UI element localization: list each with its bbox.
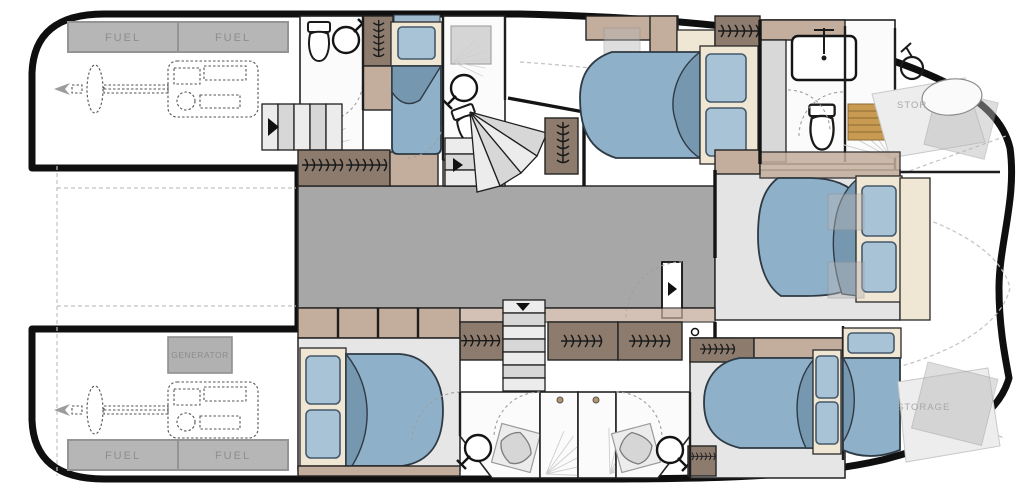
deck-hatch xyxy=(828,262,864,298)
shower-stall xyxy=(578,392,616,478)
hull-window xyxy=(394,15,440,22)
deck-hatch xyxy=(828,194,864,230)
pillow xyxy=(706,108,746,156)
pillow xyxy=(848,333,894,353)
pillow xyxy=(816,402,838,444)
toilet-icon xyxy=(308,22,330,61)
catamaran-deck-plan: FUEL FUEL GENERATOR FUEL FUEL xyxy=(0,0,1024,491)
hanging-locker xyxy=(545,118,578,174)
starboard-bow-berth xyxy=(843,326,901,460)
fwd-double-cabin-top xyxy=(580,16,760,164)
toilet-icon xyxy=(809,105,834,150)
pillow xyxy=(862,242,896,292)
starboard-aft-cabin xyxy=(298,338,460,476)
hanging-locker xyxy=(688,446,716,476)
pillow xyxy=(862,186,896,236)
port-hull-companionway xyxy=(262,104,342,150)
pillow xyxy=(306,356,340,404)
companionway-stairs-starboard xyxy=(503,300,545,391)
pillow xyxy=(816,356,838,398)
salon-floor xyxy=(298,186,715,308)
pillow xyxy=(398,27,435,59)
starboard-fuel-label-2: FUEL xyxy=(215,450,251,462)
pillow xyxy=(706,54,746,102)
pillow xyxy=(306,410,340,458)
cabinet xyxy=(363,66,393,110)
starboard-fwd-cabin xyxy=(688,338,845,478)
shower-stall xyxy=(540,392,578,478)
generator-label: GENERATOR xyxy=(171,350,229,360)
floor-plan-svg: FUEL FUEL GENERATOR FUEL FUEL xyxy=(0,0,1024,491)
starboard-fwd-head-top-right xyxy=(760,20,895,164)
starboard-fuel-label-1: FUEL xyxy=(105,450,141,462)
port-fuel-label-1: FUEL xyxy=(105,32,141,44)
port-fuel-label-2: FUEL xyxy=(215,32,251,44)
storage-label: STORAGE xyxy=(897,402,950,413)
hanging-locker xyxy=(363,16,393,66)
port-fwd-single-cabin xyxy=(391,15,443,158)
stor-label: STOR xyxy=(897,100,927,111)
